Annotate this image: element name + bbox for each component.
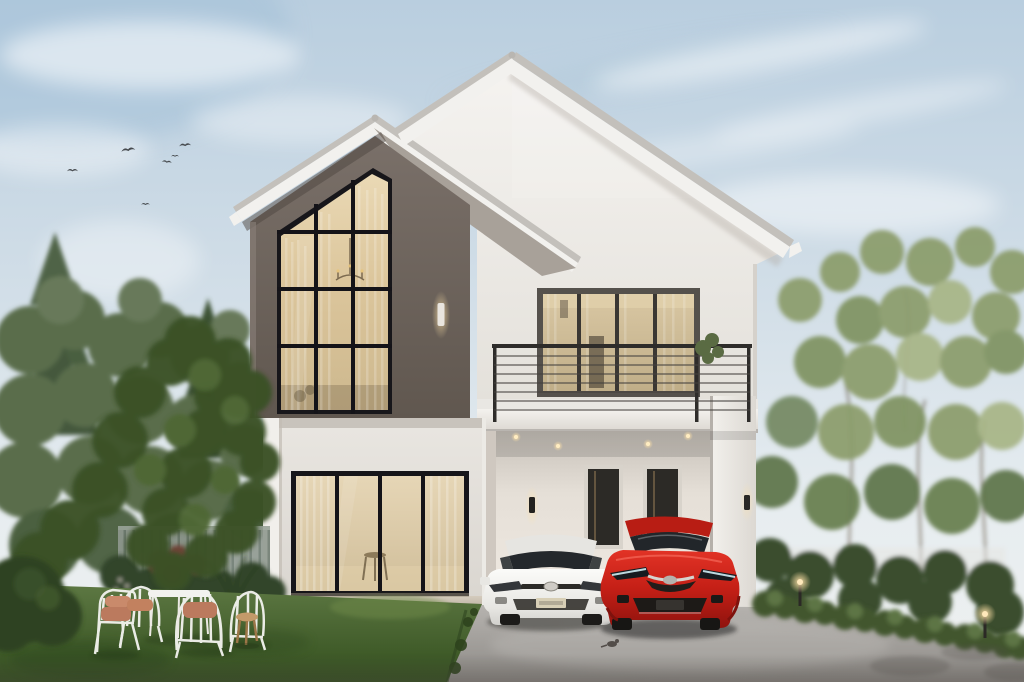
- scene-canvas: [0, 0, 1024, 682]
- roof-finial: [509, 52, 516, 59]
- roof-finial-left: [372, 115, 379, 122]
- accent-wall-sconce: [432, 291, 450, 339]
- bottom-vignette: [0, 654, 1024, 682]
- exterior-rendering-scene: [0, 0, 1024, 682]
- carport-wall-sconce: [525, 486, 539, 526]
- column-sconce: [740, 482, 754, 522]
- second-floor-window: [537, 288, 700, 397]
- carport-door: [584, 465, 623, 549]
- sliding-glass-door: [291, 471, 469, 596]
